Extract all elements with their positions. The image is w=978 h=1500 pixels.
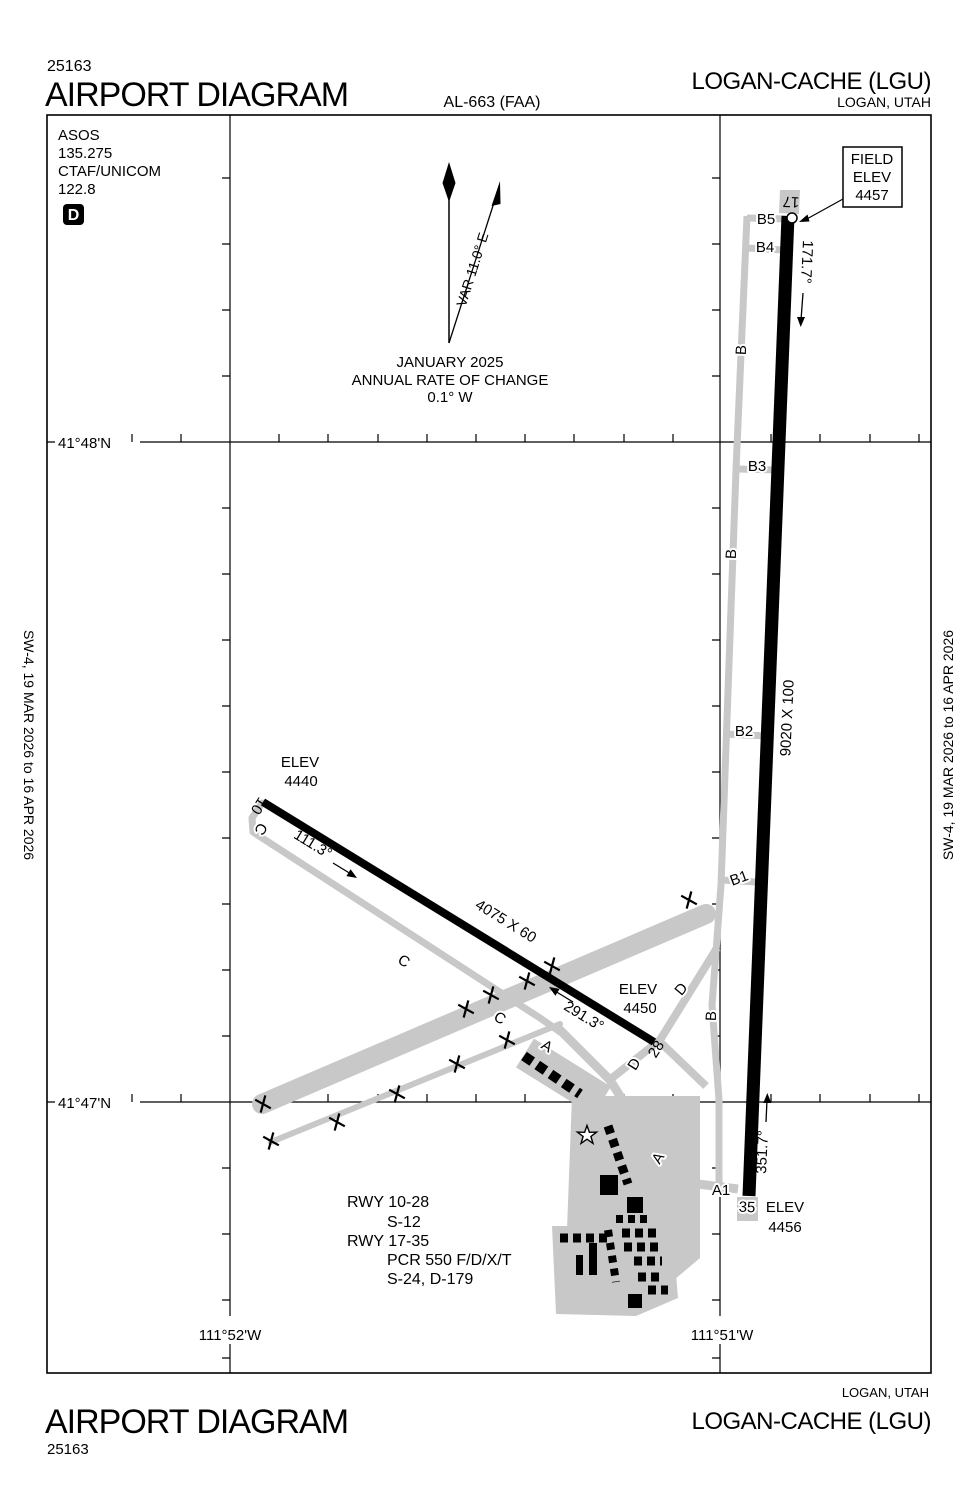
taxiway-label-b2: B2 bbox=[735, 723, 753, 740]
left-margin-effective-dates: SW-4, 19 MAR 2026 to 16 APR 2026 bbox=[21, 630, 37, 860]
map-border bbox=[47, 115, 931, 1373]
building bbox=[576, 1255, 583, 1275]
field-elev-value: 4457 bbox=[855, 187, 888, 204]
taxiway-label-b3: B3 bbox=[748, 458, 766, 475]
elev-label-rwy10: ELEV bbox=[281, 754, 319, 771]
airport-diagram-page: 25163 AIRPORT DIAGRAM AL-663 (FAA) LOGAN… bbox=[0, 0, 978, 1500]
variation-date: JANUARY 2025 bbox=[396, 354, 503, 371]
annual-rate-value: 0.1° W bbox=[427, 389, 473, 406]
runway-data-line3: RWY 17-35 bbox=[347, 1233, 429, 1250]
building bbox=[589, 1243, 597, 1275]
heading-arrow-17 bbox=[801, 293, 803, 320]
field-elev-pointer-head bbox=[799, 215, 810, 223]
latitude-label-north: 41°48'N bbox=[58, 435, 111, 452]
al-reference: AL-663 (FAA) bbox=[444, 94, 541, 111]
taxiway-labels: B5 B4 B3 B2 B1 B B B C C C D D A A A1 bbox=[250, 211, 775, 1199]
taxiway-label-b-mid: B bbox=[723, 549, 741, 560]
taxiway-label-b1: B1 bbox=[728, 867, 751, 889]
runway-number-35: 35 bbox=[738, 1199, 755, 1217]
taxiway-label-b-north: B bbox=[733, 345, 751, 356]
ctaf-unicom-frequency: 122.8 bbox=[58, 181, 96, 198]
asos-label: ASOS bbox=[58, 127, 100, 144]
building bbox=[628, 1294, 642, 1308]
ctaf-unicom-label: CTAF/UNICOM bbox=[58, 163, 161, 180]
runway-number-10: 10 bbox=[247, 794, 270, 817]
runway-data-line5: S-24, D-179 bbox=[387, 1271, 473, 1288]
field-elev-pointer-line bbox=[805, 199, 843, 220]
taxiway-label-c-mid: C bbox=[395, 951, 413, 971]
longitude-ticks-west bbox=[222, 178, 230, 1358]
runway-data-line2: S-12 bbox=[387, 1214, 421, 1231]
field-elev-line2: ELEV bbox=[853, 169, 891, 186]
true-north-arrow-head bbox=[443, 162, 456, 202]
taxiway-label-b-south: B bbox=[703, 1011, 721, 1022]
taxiway-b-pavement bbox=[712, 216, 747, 1187]
asos-frequency: 135.275 bbox=[58, 145, 112, 162]
taxiway-label-a1: A1 bbox=[712, 1182, 730, 1199]
header: 25163 AIRPORT DIAGRAM AL-663 (FAA) LOGAN… bbox=[45, 58, 931, 114]
compass-rose: VAR 11.0° E JANUARY 2025 ANNUAL RATE OF … bbox=[352, 162, 549, 406]
latitude-ticks-south bbox=[132, 1094, 919, 1102]
field-elevation-point bbox=[787, 213, 797, 223]
x-mark bbox=[681, 891, 697, 908]
elev-value-rwy10: 4440 bbox=[284, 773, 317, 790]
airport-diagram-canvas: 25163 AIRPORT DIAGRAM AL-663 (FAA) LOGAN… bbox=[0, 0, 978, 1500]
runway-number-17: 17 bbox=[782, 193, 799, 211]
taxiway-label-b5: B5 bbox=[757, 211, 775, 228]
header-page-code: 25163 bbox=[47, 58, 92, 75]
right-margin-effective-dates: SW-4, 19 MAR 2026 to 16 APR 2026 bbox=[940, 630, 956, 860]
elev-value-rwy28: 4450 bbox=[623, 1000, 656, 1017]
latitude-ticks-north bbox=[132, 434, 919, 442]
heading-arrow-10 bbox=[333, 863, 351, 874]
runway-data-line4: PCR 550 F/D/X/T bbox=[387, 1252, 512, 1269]
page-title: AIRPORT DIAGRAM bbox=[45, 76, 348, 114]
elev-label-rwy28: ELEV bbox=[619, 981, 657, 998]
annual-rate-label: ANNUAL RATE OF CHANGE bbox=[352, 372, 549, 389]
longitude-label-east: 111°51'W bbox=[691, 1327, 754, 1344]
taxiway-pavement bbox=[252, 190, 800, 1316]
runway-data-line1: RWY 10-28 bbox=[347, 1194, 429, 1211]
airport-city: LOGAN, UTAH bbox=[837, 94, 931, 110]
field-elevation-box: FIELD ELEV 4457 bbox=[799, 147, 902, 222]
runway-35-heading: 351.7° bbox=[753, 1130, 772, 1174]
longitude-label-west: 111°52'W bbox=[199, 1327, 262, 1344]
heading-arrow-35 bbox=[766, 1100, 767, 1122]
footer-city: LOGAN, UTAH bbox=[842, 1385, 929, 1400]
graticule: 41°48'N 41°47'N 111°52'W 111°51'W bbox=[47, 115, 931, 1373]
building bbox=[627, 1197, 643, 1213]
footer-title: AIRPORT DIAGRAM bbox=[45, 1403, 348, 1441]
airport-name: LOGAN-CACHE (LGU) bbox=[691, 68, 931, 95]
elev-label-rwy35: ELEV bbox=[766, 1199, 804, 1216]
latitude-label-south: 41°47'N bbox=[58, 1095, 111, 1112]
runway-17-heading: 171.7° bbox=[797, 240, 816, 284]
footer-airport-name: LOGAN-CACHE (LGU) bbox=[691, 1408, 931, 1435]
heading-arrow-17-head bbox=[797, 317, 805, 327]
runway-data-block: RWY 10-28 S-12 RWY 17-35 PCR 550 F/D/X/T… bbox=[347, 1194, 512, 1288]
magnetic-variation-label: VAR 11.0° E bbox=[453, 231, 491, 309]
magnetic-north-arrow-head bbox=[492, 181, 501, 206]
taxiway-label-b4: B4 bbox=[756, 239, 774, 256]
field-elev-line1: FIELD bbox=[851, 151, 894, 168]
comms-box: ASOS 135.275 CTAF/UNICOM 122.8 D bbox=[58, 127, 161, 225]
building bbox=[600, 1175, 618, 1195]
elev-value-rwy35: 4456 bbox=[768, 1219, 801, 1236]
heading-arrow-10-head bbox=[346, 869, 357, 878]
heading-arrow-35-head bbox=[763, 1093, 771, 1103]
footer: LOGAN, UTAH LOGAN-CACHE (LGU) AIRPORT DI… bbox=[45, 1385, 931, 1458]
runway-17-35-dimensions: 9020 X 100 bbox=[777, 679, 797, 756]
airport-diagram-symbol: D bbox=[68, 207, 80, 224]
footer-page-code: 25163 bbox=[47, 1441, 89, 1458]
